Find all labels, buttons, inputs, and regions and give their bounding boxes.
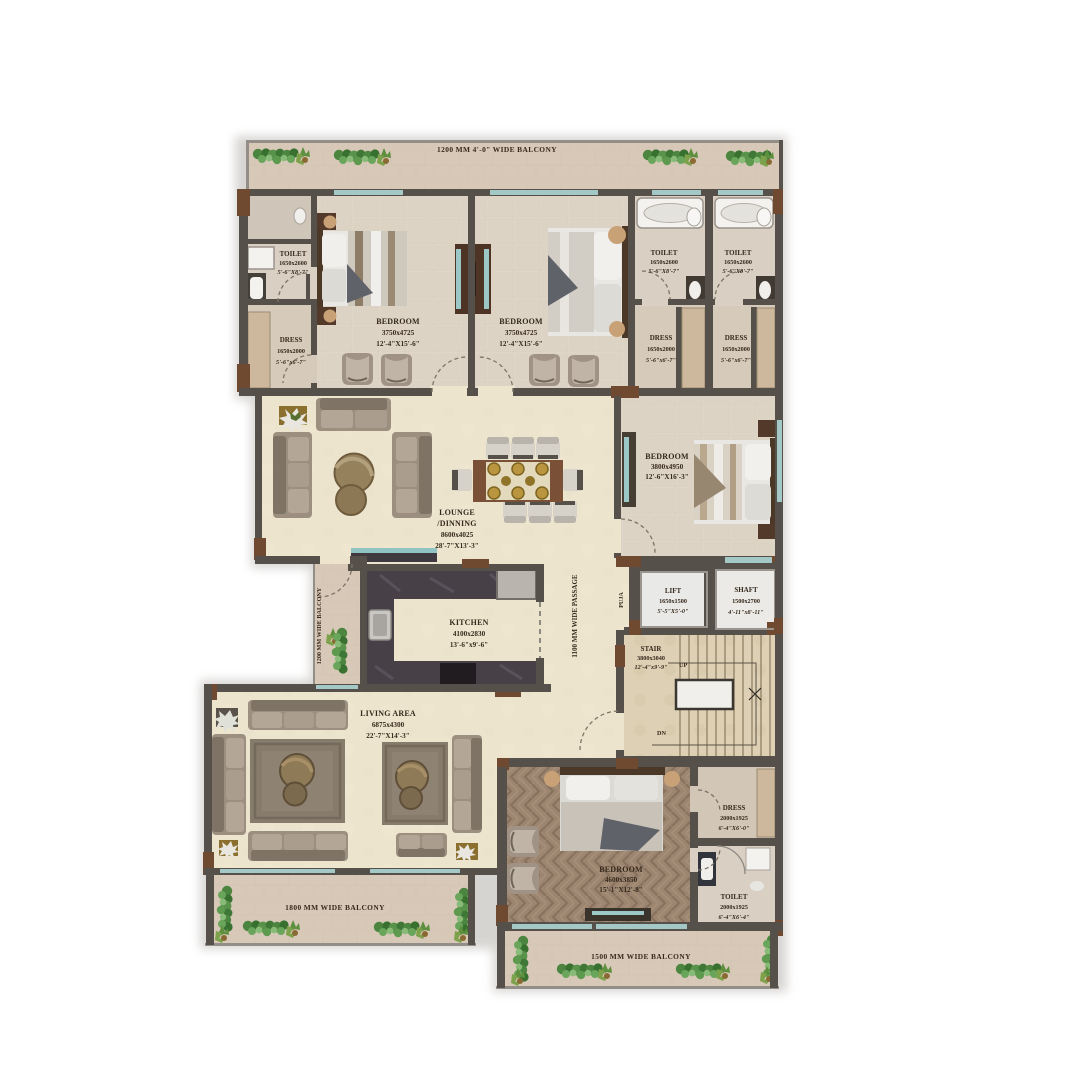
svg-text:4600x3850: 4600x3850	[605, 876, 638, 884]
svg-text:1500 MM WIDE BALCONY: 1500 MM WIDE BALCONY	[591, 952, 691, 961]
svg-text:6875x4300: 6875x4300	[372, 721, 405, 729]
svg-text:TOILET: TOILET	[651, 249, 678, 257]
svg-text:13'-6"x9'-6": 13'-6"x9'-6"	[450, 641, 488, 649]
svg-text:1800 MM WIDE BALCONY: 1800 MM WIDE BALCONY	[285, 903, 385, 912]
svg-text:1500x2700: 1500x2700	[732, 598, 760, 605]
svg-text:3750x4725: 3750x4725	[382, 329, 415, 337]
svg-text:LOUNGE: LOUNGE	[439, 508, 475, 517]
svg-text:5'-6"X8'-7": 5'-6"X8'-7"	[723, 268, 754, 275]
svg-text:DRESS: DRESS	[725, 334, 748, 342]
svg-text:8600x4025: 8600x4025	[441, 531, 474, 539]
svg-text:28'-7"X13'-3": 28'-7"X13'-3"	[435, 542, 479, 550]
svg-text:BEDROOM: BEDROOM	[645, 452, 689, 461]
svg-text:5'-6"x6'-7": 5'-6"x6'-7"	[721, 357, 751, 364]
svg-text:PUJA: PUJA	[618, 592, 625, 608]
svg-text:1200 MM WIDE BALCONY: 1200 MM WIDE BALCONY	[316, 587, 323, 664]
svg-text:1650x2000: 1650x2000	[722, 346, 750, 353]
svg-text:DRESS: DRESS	[723, 804, 746, 812]
svg-text:1650x2000: 1650x2000	[647, 346, 675, 353]
svg-text:22'-7"X14'-3": 22'-7"X14'-3"	[366, 732, 410, 740]
svg-text:1650x1500: 1650x1500	[659, 598, 687, 605]
svg-text:1650x2600: 1650x2600	[650, 259, 678, 266]
svg-text:/DINNING: /DINNING	[436, 519, 476, 528]
svg-text:TOILET: TOILET	[280, 250, 307, 258]
svg-text:TOILET: TOILET	[721, 893, 748, 901]
svg-text:DN: DN	[657, 730, 666, 737]
svg-text:15'-1"X12'-8": 15'-1"X12'-8"	[599, 886, 643, 894]
svg-text:1200 MM 4'-0" WIDE BALCONY: 1200 MM 4'-0" WIDE BALCONY	[437, 145, 557, 154]
svg-text:5'-6"x6'-7": 5'-6"x6'-7"	[646, 357, 676, 364]
svg-text:UP: UP	[679, 662, 687, 669]
svg-text:1650x2600: 1650x2600	[724, 259, 752, 266]
svg-text:6'-4"X6'-0": 6'-4"X6'-0"	[719, 825, 750, 832]
svg-text:BEDROOM: BEDROOM	[599, 865, 643, 874]
svg-text:5'-6"X8'-7": 5'-6"X8'-7"	[278, 269, 309, 276]
svg-text:1650x2000: 1650x2000	[277, 348, 305, 355]
svg-text:TOILET: TOILET	[725, 249, 752, 257]
svg-text:5'-6"X8'-7": 5'-6"X8'-7"	[649, 268, 680, 275]
svg-text:12'-6"X16'-3": 12'-6"X16'-3"	[645, 473, 689, 481]
svg-text:6'-4"X6'-4": 6'-4"X6'-4"	[719, 914, 750, 921]
svg-text:3800x4950: 3800x4950	[651, 463, 684, 471]
svg-text:DRESS: DRESS	[280, 336, 303, 344]
svg-text:12'-4"X15'-6": 12'-4"X15'-6"	[499, 340, 543, 348]
svg-text:12'-4"X15'-6": 12'-4"X15'-6"	[376, 340, 420, 348]
svg-text:SHAFT: SHAFT	[734, 586, 758, 594]
svg-text:1650x2600: 1650x2600	[279, 260, 307, 267]
svg-text:BEDROOM: BEDROOM	[499, 317, 543, 326]
svg-text:LIVING AREA: LIVING AREA	[360, 709, 416, 718]
svg-text:2000x1925: 2000x1925	[720, 815, 748, 822]
svg-text:DRESS: DRESS	[650, 334, 673, 342]
svg-text:4100x2830: 4100x2830	[453, 630, 486, 638]
svg-text:KITCHEN: KITCHEN	[449, 618, 488, 627]
svg-text:4'-11"x8'-11": 4'-11"x8'-11"	[727, 609, 764, 616]
svg-text:5'-6"x6'-7": 5'-6"x6'-7"	[276, 359, 306, 366]
svg-text:BEDROOM: BEDROOM	[376, 317, 420, 326]
svg-text:2000x1925: 2000x1925	[720, 904, 748, 911]
svg-text:3800x3040: 3800x3040	[637, 655, 665, 662]
svg-text:LIFT: LIFT	[665, 587, 682, 595]
svg-text:5'-5"X5'-0": 5'-5"X5'-0"	[658, 608, 689, 615]
svg-text:3750x4725: 3750x4725	[505, 329, 538, 337]
svg-text:STAIR: STAIR	[641, 645, 663, 653]
svg-text:1100 MM WIDE PASSAGE: 1100 MM WIDE PASSAGE	[571, 574, 579, 657]
svg-text:12'-4"x9'-9": 12'-4"x9'-9"	[635, 664, 669, 671]
